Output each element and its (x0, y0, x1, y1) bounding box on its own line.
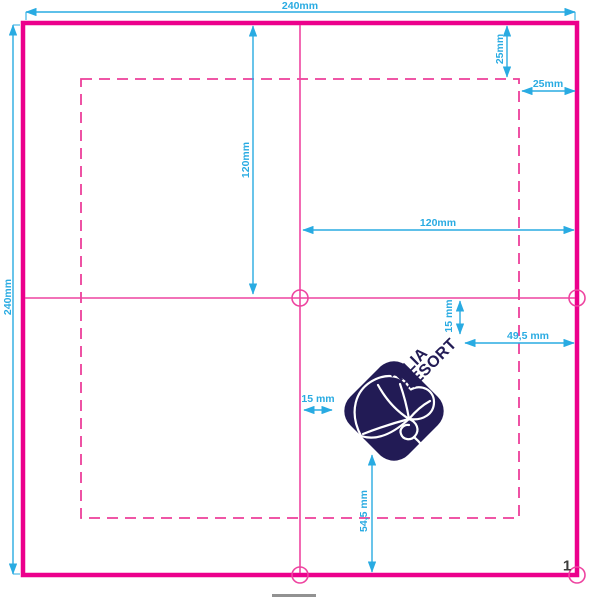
dim-label-sheet-width: 240mm (282, 0, 318, 12)
dieline-drawing (0, 0, 600, 600)
napkin-dieline-canvas: 240mm 240mm 120mm 25mm 25mm 120mm 15 mm … (0, 0, 600, 600)
dim-label-fold-vertical: 120mm (240, 142, 252, 178)
dim-label-inset-right: 25mm (533, 78, 563, 90)
dim-label-logo-bottom: 54,5 mm (358, 490, 370, 532)
dim-label-center-right: 120mm (420, 217, 456, 229)
dim-label-logo-top: 15 mm (443, 299, 455, 332)
page-indicator-bar (272, 594, 316, 597)
dim-label-sheet-height: 240mm (2, 279, 14, 315)
dim-label-logo-right: 49,5 mm (507, 330, 549, 342)
dim-stub-top (26, 12, 575, 20)
page-number: 1 (563, 558, 571, 575)
dim-label-inset-top: 25mm (494, 34, 506, 64)
dim-stub-left (13, 25, 20, 574)
dim-label-logo-left: 15 mm (301, 393, 334, 405)
